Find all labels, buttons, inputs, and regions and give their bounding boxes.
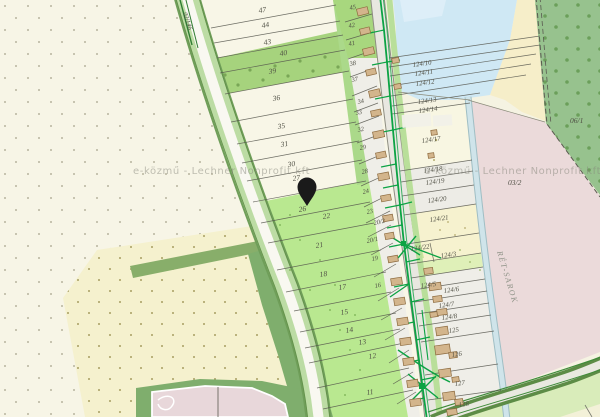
meadow-parcel-label: 03/2 [508,178,522,187]
blurred-buildings [402,113,453,128]
watermark-text: e-közmű - Lechner Nonprofit kft [424,165,600,177]
parcel-label: 128 [458,401,470,409]
forest-parcel-label: 06/1 [570,116,583,125]
parcel-label: 39 [267,66,277,76]
parcel-label: 125 [448,327,460,335]
parcel-label: 35 [276,121,286,131]
parcel-label: 126 [451,351,463,359]
map-svg: 47 44 43 40 39 36 35 31 30 27 26 22 21 1… [0,0,600,417]
parcel-label: 36 [271,93,281,103]
parcel-label: 31 [279,139,289,149]
map-canvas[interactable]: 47 44 43 40 39 36 35 31 30 27 26 22 21 1… [0,0,600,417]
parcel-label: 11 [366,387,374,397]
parcel-label: 127 [454,380,466,388]
parcel-label: 21 [315,240,324,250]
watermark-text: e-közmű - Lechner Nonprofit kft [133,165,310,177]
